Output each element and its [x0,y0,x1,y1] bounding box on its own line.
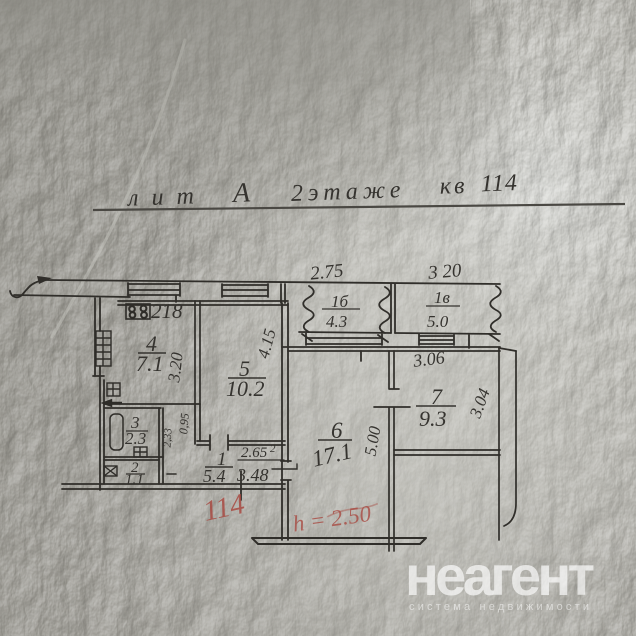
svg-text:2,33: 2,33 [162,427,175,447]
svg-text:система недвижимости: система недвижимости [409,601,591,613]
svg-text:9.3: 9.3 [419,406,447,431]
svg-text:2.3: 2.3 [125,429,146,448]
svg-text:0,95: 0,95 [176,413,192,435]
svg-text:1б: 1б [331,292,349,311]
svg-text:2этаже: 2этаже [290,177,405,207]
svg-text:7.1: 7.1 [136,351,164,376]
svg-text:лит: лит [126,183,208,212]
svg-text:5.4: 5.4 [203,466,226,486]
svg-text:4.3: 4.3 [326,312,347,331]
svg-text:1.1: 1.1 [125,472,144,488]
svg-text:кв: кв [439,173,468,200]
svg-text:10.2: 10.2 [226,376,265,401]
svg-text:2.65: 2.65 [241,445,268,461]
svg-text:3.06: 3.06 [411,347,446,371]
svg-text:5.0: 5.0 [427,312,449,331]
svg-text:218: 218 [151,299,183,323]
svg-text:2.75: 2.75 [309,260,344,284]
svg-text:3 20: 3 20 [426,260,462,284]
svg-text:А: А [230,177,252,209]
svg-text:3.20: 3.20 [164,351,187,384]
svg-text:1в: 1в [434,288,451,307]
svg-text:2: 2 [270,443,276,455]
svg-text:3.48: 3.48 [236,465,269,485]
svg-text:неагент: неагент [405,544,595,607]
svg-text:114: 114 [480,170,518,197]
